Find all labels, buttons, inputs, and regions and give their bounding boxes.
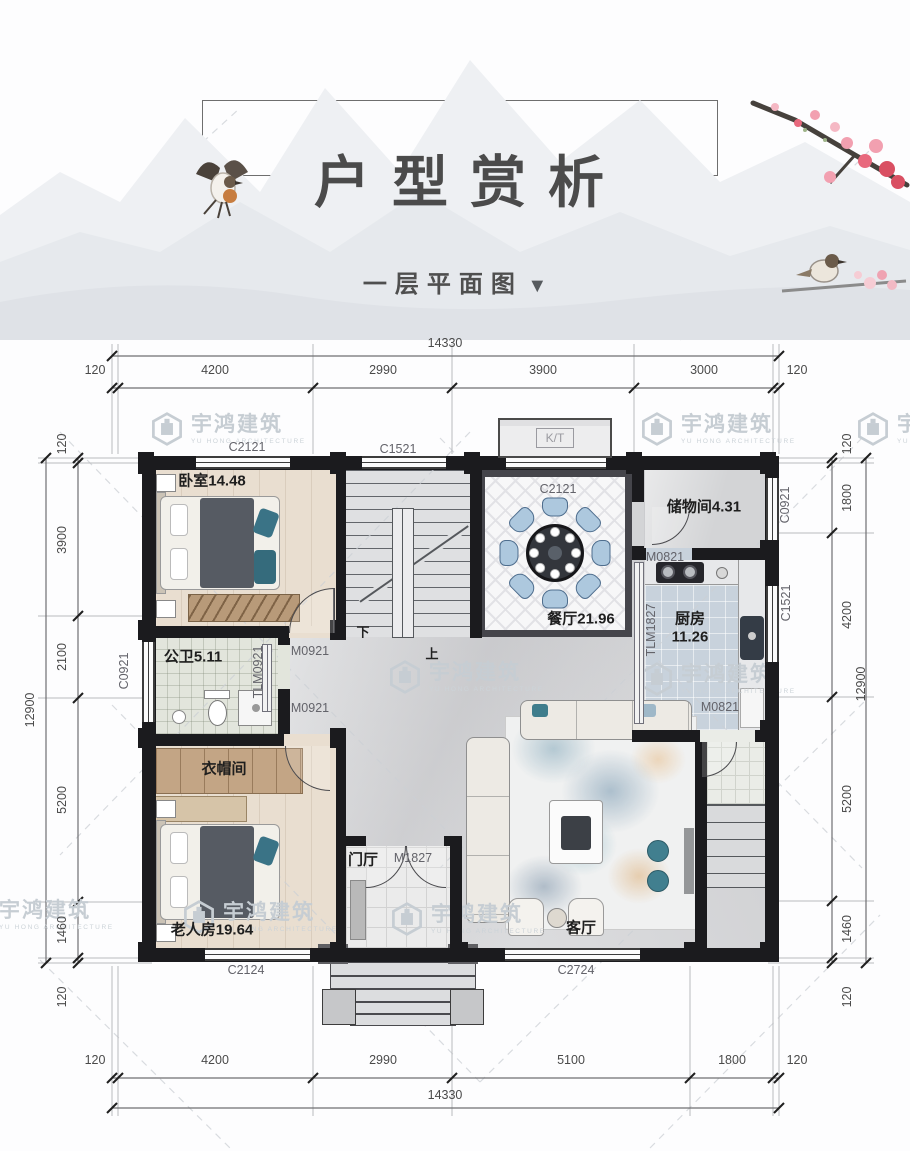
bench [254,550,276,584]
code-tlm1827: TLM1827 [644,604,658,657]
dim-top-seg: 3000 [690,363,718,377]
armchair [508,898,544,936]
code-c0921-right: C0921 [778,487,792,524]
pillow [170,504,188,536]
code-c0921-left: C0921 [117,653,131,690]
bed-blanket [200,498,254,588]
bay-window-kt-label: K/T [536,428,574,448]
nightstand [156,800,176,818]
code-m0921-upper: M0921 [291,644,329,658]
sofa-side [466,737,510,923]
dim-right-seg: 5200 [840,785,854,813]
column [760,540,776,560]
entry-pillar [450,989,484,1025]
entry-step [350,1002,456,1014]
wall-foyer-right [450,836,462,948]
column [330,452,346,474]
label-bathroom: 公卫5.11 [164,646,222,667]
dim-bottom-seg: 4200 [201,1053,229,1067]
sliding-door-tlm1827 [634,562,644,724]
label-elder-room: 老人房19.64 [171,919,254,940]
label-stairs-up: 上 [425,644,438,663]
label-dining-room: 餐厅21.96 [547,608,615,629]
window-c1521-right [766,586,779,662]
door-opening [278,645,290,689]
code-m1827: M1827 [394,851,432,865]
column [138,942,154,962]
toilet [208,700,227,726]
dim-right-seg: 120 [840,434,854,455]
dining-chair [542,590,568,609]
burner [661,565,675,579]
stair-stringer [392,508,414,638]
column [626,452,642,474]
code-m0921-lower: M0921 [291,701,329,715]
side-table [547,908,567,928]
toilet-tank [204,690,230,699]
window-c2724-bottom [505,948,640,961]
burner [683,565,697,579]
dim-bottom-seg: 5100 [557,1053,585,1067]
door-opening [284,734,330,746]
dim-top-overall: 14330 [428,336,463,350]
plate [550,527,560,537]
dim-top-seg: 120 [85,363,106,377]
code-c2121-top: C2121 [229,440,266,454]
plate [529,548,539,558]
dim-left-seg: 5200 [55,786,69,814]
code-c2124: C2124 [228,963,265,977]
dim-right-seg: 1460 [840,915,854,943]
bird-icon [190,152,260,224]
window-c2124-bottom [205,948,310,961]
faucet [748,632,756,640]
label-living-room: 客厅 [566,917,596,938]
plate [550,569,560,579]
dining-chair [542,498,568,517]
nightstand [156,474,176,492]
wall-foyer-top-left [346,836,366,846]
dim-bottom-seg: 2990 [369,1053,397,1067]
centerpiece [548,546,562,560]
wall-console [684,828,694,894]
plum-blossom-branch [735,85,910,225]
label-foyer: 门厅 [348,849,378,870]
nightstand [156,600,176,618]
label-stairs-down: 下 [356,622,369,641]
wardrobe [188,594,300,622]
dim-top-seg: 2990 [369,363,397,377]
triangle-down-icon: ▼ [527,275,547,297]
dim-left-seg: 2100 [55,643,69,671]
label-storage: 储物间4.31 [667,496,741,517]
foyer-bench [350,880,366,940]
dim-left-seg: 120 [55,434,69,455]
column [464,452,480,474]
column [684,942,700,962]
column [138,452,154,474]
dim-bottom-seg: 120 [787,1053,808,1067]
wall-bedroom-right [336,470,346,630]
code-tlm0921: TLM0921 [251,646,265,699]
dim-top-seg: 4200 [201,363,229,377]
door-opening [632,502,644,546]
dim-left-seg: 120 [55,987,69,1008]
dim-left-seg: 3900 [55,526,69,554]
floor-plan-page: 户型赏析 一层平面图 ▼ [0,0,910,1151]
code-c2121-dining: C2121 [540,482,577,496]
label-cloakroom: 衣帽间 [201,758,246,779]
window-c1521-top [362,456,446,469]
column [330,728,346,748]
label-kitchen-area: 11.26 [672,629,709,646]
code-c2724: C2724 [558,963,595,977]
coffee-table-tray [561,816,591,850]
kitchen-sink-small [716,567,728,579]
dim-right-seg: 1800 [840,484,854,512]
code-c1521-top: C1521 [380,442,417,456]
door-opening [700,730,755,742]
column [760,452,776,474]
plate [571,548,581,558]
entry-step [350,989,456,1002]
column [138,620,154,640]
pillow [170,832,188,864]
bed-blanket [200,826,254,918]
entry-step [330,962,476,976]
kt-text: K/T [546,431,565,445]
dim-right-seg: 4200 [840,601,854,629]
pillow [170,548,188,580]
dim-left-overall: 12900 [23,693,37,728]
page-title: 户型赏析 [205,138,735,219]
code-m0821-kitchen: M0821 [701,700,739,714]
subtitle-row: 一层平面图 ▼ [0,264,910,299]
dining-chair [592,540,611,566]
window-c0921-left [142,642,155,722]
entry-step [350,1014,456,1026]
dim-top-seg: 3900 [529,363,557,377]
column [760,720,776,740]
bathroom-sink [172,710,186,724]
code-c1521-right: C1521 [779,585,793,622]
dim-top-seg: 120 [787,363,808,377]
window-c2121-top [196,456,290,469]
entry-step [330,976,476,989]
dim-right-overall: 12900 [854,667,868,702]
throw-pillow [532,704,548,717]
floor-label: 一层平面图 [363,271,523,298]
shower-drain [252,704,260,712]
dining-chair [500,540,519,566]
dim-left-seg: 1460 [55,916,69,944]
pouf [647,870,669,892]
column [452,942,468,962]
pillow [170,876,188,908]
wall-elder-right [336,746,346,948]
column [330,942,346,962]
column [760,942,776,962]
pouf [647,840,669,862]
label-kitchen-name: 厨房 [675,608,705,629]
wall-stair-right [470,456,482,638]
dim-bottom-seg: 1800 [718,1053,746,1067]
dim-bottom-seg: 120 [85,1053,106,1067]
column [138,728,154,748]
dim-bottom-overall: 14330 [428,1088,463,1102]
label-bedroom: 卧室14.48 [178,470,246,491]
code-m0821-storage: M0821 [646,550,684,564]
entry-pillar [322,989,356,1025]
dim-right-seg: 120 [840,987,854,1008]
